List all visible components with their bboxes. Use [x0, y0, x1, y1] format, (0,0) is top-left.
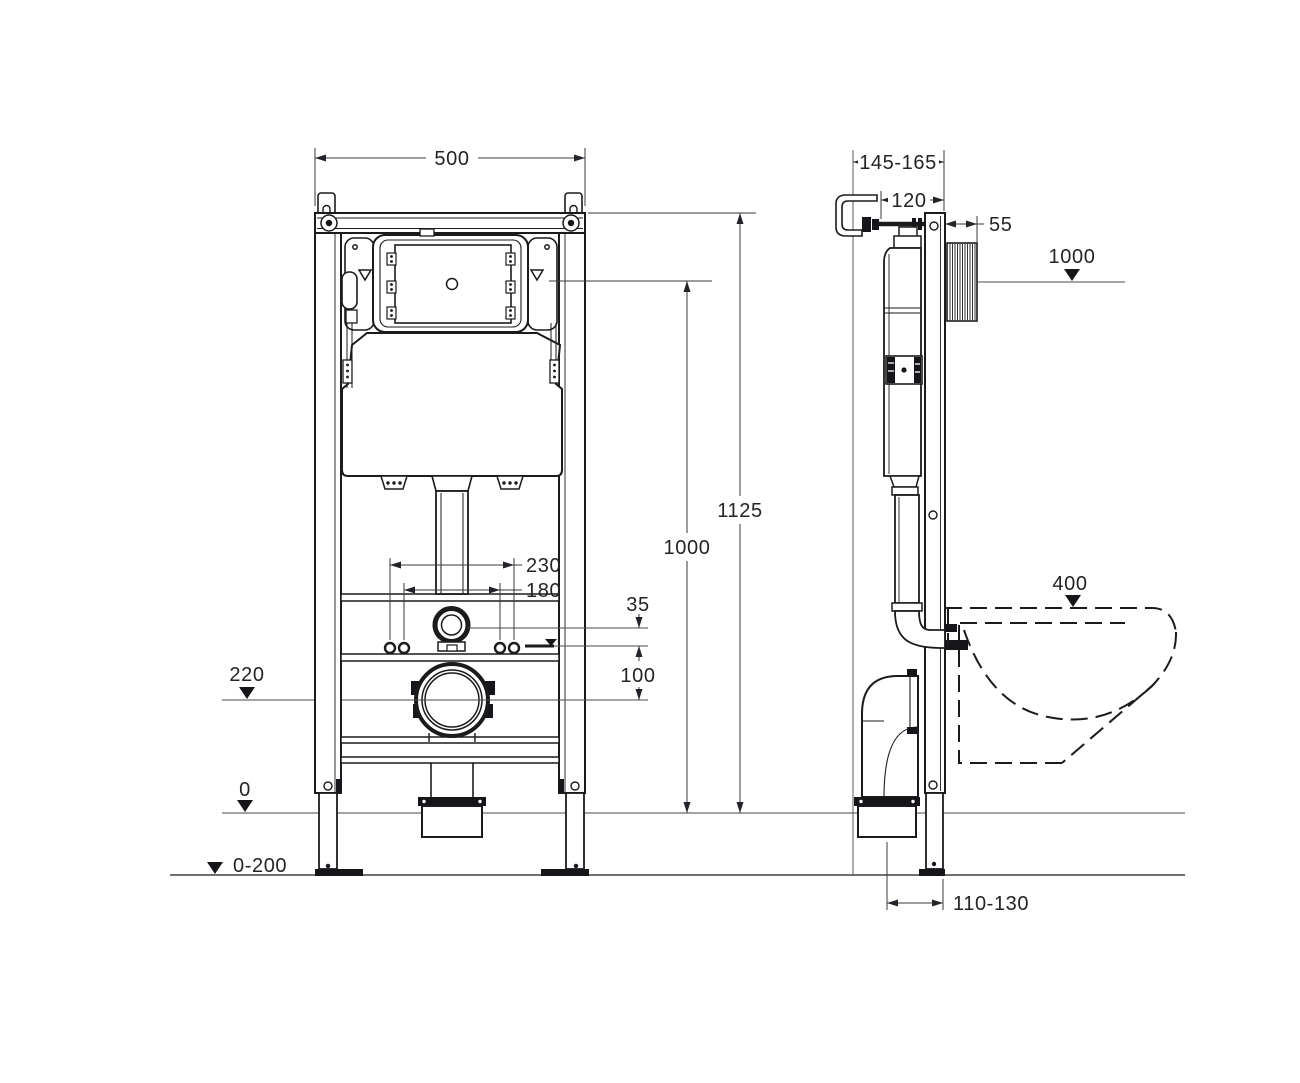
flush-shaft — [947, 243, 977, 321]
side-view: 145-165 120 55 1000 400 — [836, 150, 1176, 915]
flush-pipe — [432, 476, 472, 651]
technical-drawing: 500 1125 1000 230 — [0, 0, 1300, 1083]
dim-zero-level: 0 — [239, 779, 251, 801]
level-triangle-icon — [1065, 595, 1081, 607]
dim-panel-height-side: 1000 — [1049, 246, 1096, 268]
level-triangle-icon — [239, 687, 255, 699]
side-frame — [919, 213, 945, 876]
dim-outlet-offset: 110-130 — [953, 893, 1029, 915]
level-triangle-icon — [207, 862, 223, 874]
level-triangle-icon — [1064, 269, 1080, 281]
waste-elbow — [854, 669, 920, 837]
flush-panel — [373, 229, 528, 332]
water-level-mark — [525, 639, 557, 646]
dim-inlet-offset: 35 — [626, 594, 649, 616]
dim-bolt-outer: 230 — [526, 555, 561, 577]
dim-floor-range: 0-200 — [233, 855, 287, 877]
dim-frame-height: 1125 — [717, 500, 762, 522]
dim-install-depth: 145-165 — [859, 152, 937, 174]
drain-outlet — [411, 664, 495, 837]
front-view: 500 1125 1000 230 — [207, 147, 767, 877]
dim-bracket-offset: 120 — [891, 190, 926, 212]
technical-drawing-page: 500 1125 1000 230 — [0, 0, 1300, 1083]
toilet-bowl-outline — [945, 608, 1176, 763]
dim-front-width: 500 — [434, 148, 469, 170]
dim-water-drain-gap: 100 — [620, 665, 655, 687]
hanger-tab-icon — [318, 193, 582, 215]
dim-bolt-inner: 180 — [526, 580, 561, 602]
dim-drain-height: 220 — [229, 664, 264, 686]
dim-panel-height-front: 1000 — [664, 537, 711, 559]
dim-shaft-protrusion: 55 — [989, 214, 1012, 236]
dim-rim-height: 400 — [1052, 573, 1087, 595]
bowl-fixing-icon — [945, 624, 957, 632]
level-triangle-icon — [237, 800, 253, 812]
